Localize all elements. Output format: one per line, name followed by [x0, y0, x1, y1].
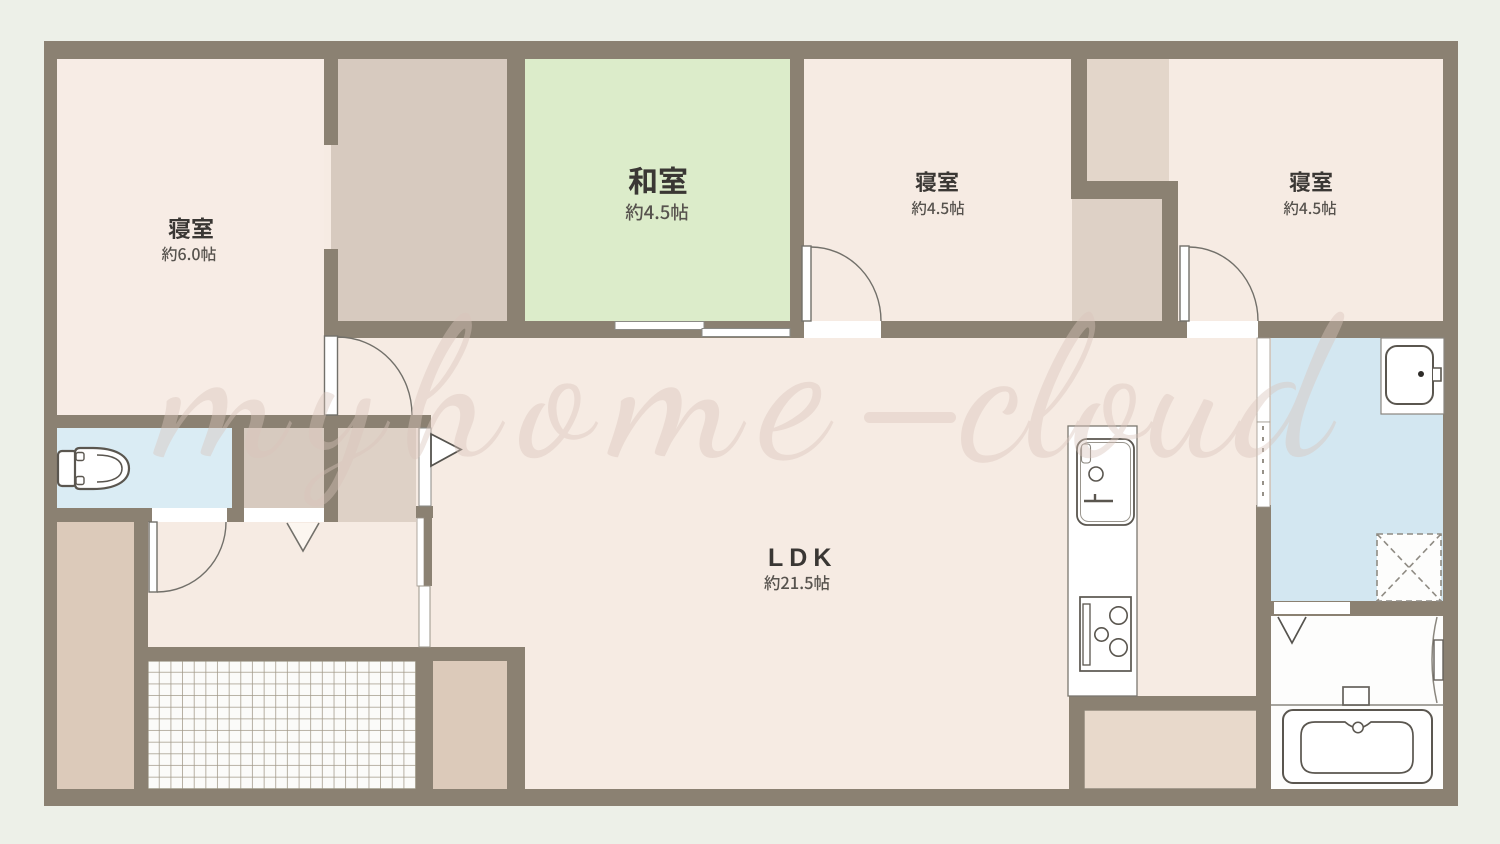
svg-text:LDK: LDK — [768, 544, 837, 572]
